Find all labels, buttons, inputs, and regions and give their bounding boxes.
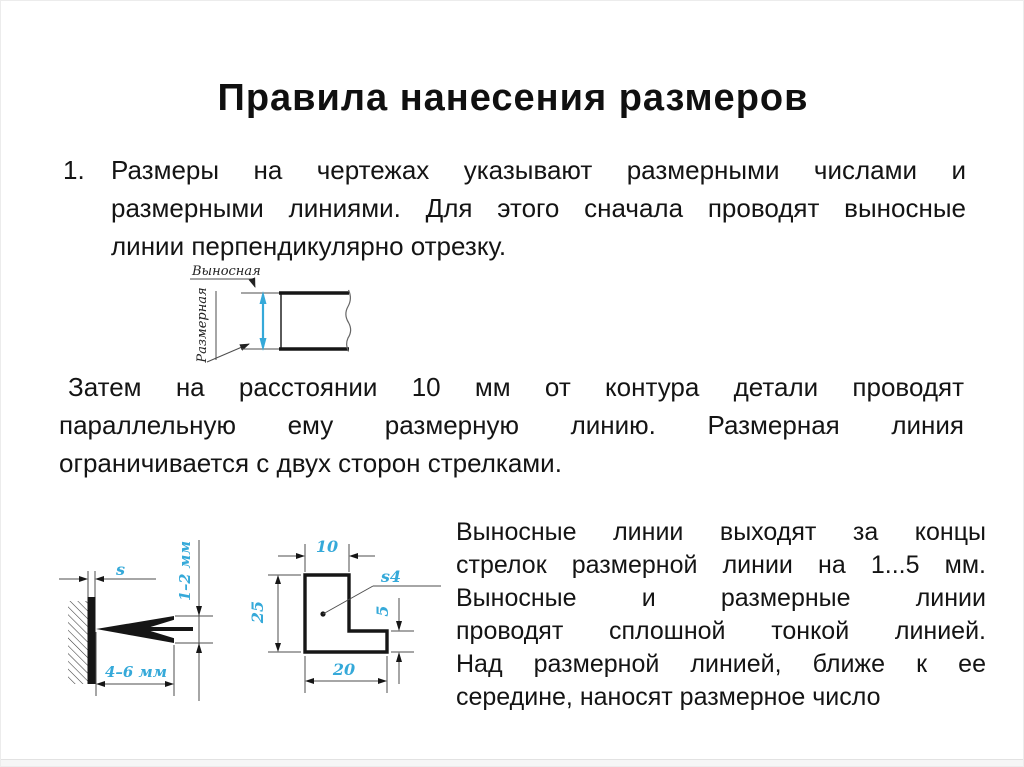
arrow-width-dim-label: 1–2 мм <box>177 541 194 601</box>
dimension-arrowhead <box>396 621 402 631</box>
slide-footer-strip <box>1 759 1023 766</box>
text-line: Выносные и размерные линии <box>456 582 986 615</box>
text-line: Выносные линии выходят за концы <box>456 516 986 549</box>
contour-line-bar <box>88 597 96 684</box>
text-line: параллельную ему размерную линию. Размер… <box>59 406 964 444</box>
list-item-number: 1. <box>63 151 85 189</box>
text-line: Над размерной линией, ближе к ее <box>456 648 986 681</box>
dimension-arrowhead <box>95 576 104 582</box>
paragraph-extension-lines: Выносные линии выходят за концы стрелок … <box>456 516 986 714</box>
dimension-arrowhead <box>165 681 174 687</box>
paragraph-dimension-line: Затем на расстоянии 10 мм от контура дет… <box>59 368 964 482</box>
dimension-line-label: Размерная <box>195 287 210 363</box>
rule-list-text: Размеры на чертежах указывают размерными… <box>111 151 966 265</box>
dimension-arrowhead <box>349 553 358 559</box>
leader-arrow <box>252 279 255 287</box>
dimension-arrowhead <box>275 643 281 652</box>
dim-bottom-label: 20 <box>332 660 355 679</box>
extension-line-label: Выносная <box>191 264 261 279</box>
text-line: ограничивается с двух сторон стрелками. <box>59 444 964 482</box>
text-line: Затем на расстоянии 10 мм от контура дет… <box>59 368 964 406</box>
figure-extension-dimension-lines: Выносная Размерная <box>189 263 359 363</box>
figure-l-part: 10 25 20 5 s4 <box>251 531 451 706</box>
dimension-arrowhead <box>296 553 305 559</box>
dimension-arrowhead <box>378 678 387 684</box>
thickness-dim-label: s4 <box>380 567 401 586</box>
dimension-arrowhead <box>305 678 314 684</box>
slide-title: Правила нанесения размеров <box>1 77 1024 120</box>
dimension-arrowhead <box>396 652 402 662</box>
text-line: размерными линиями. Для этого сначала пр… <box>111 189 966 227</box>
thickness-dim-label: s <box>115 560 125 579</box>
slide: Правила нанесения размеров 1. Размеры на… <box>0 0 1024 767</box>
dimension-arrowhead <box>96 681 105 687</box>
dim-top-label: 10 <box>316 537 338 556</box>
text-line: стрелок размерной линии на 1...5 мм. <box>456 549 986 582</box>
dim-left-label: 25 <box>251 601 267 624</box>
dimension-arrowhead <box>275 575 281 584</box>
text-line: линии перпендикулярно отрезку. <box>111 227 966 265</box>
hatching <box>68 601 88 684</box>
rule-list-item: 1. Размеры на чертежах указывают размерн… <box>63 151 966 265</box>
leader-arrow <box>207 344 249 362</box>
dimension-arrowhead <box>196 606 202 616</box>
text-line: проводят сплошной тонкой линией. <box>456 615 986 648</box>
dim-right-label: 5 <box>373 605 392 616</box>
text-line: Размеры на чертежах указывают размерными… <box>111 151 966 189</box>
figure-arrowhead-detail: s 1–2 мм 4–6 мм <box>56 533 218 703</box>
arrow-length-dim-label: 4–6 мм <box>105 663 167 681</box>
break-line <box>346 290 351 352</box>
text-line: середине, наносят размерное число <box>456 681 986 714</box>
dimension-arrowhead <box>196 643 202 653</box>
dimension-arrowhead <box>79 576 88 582</box>
